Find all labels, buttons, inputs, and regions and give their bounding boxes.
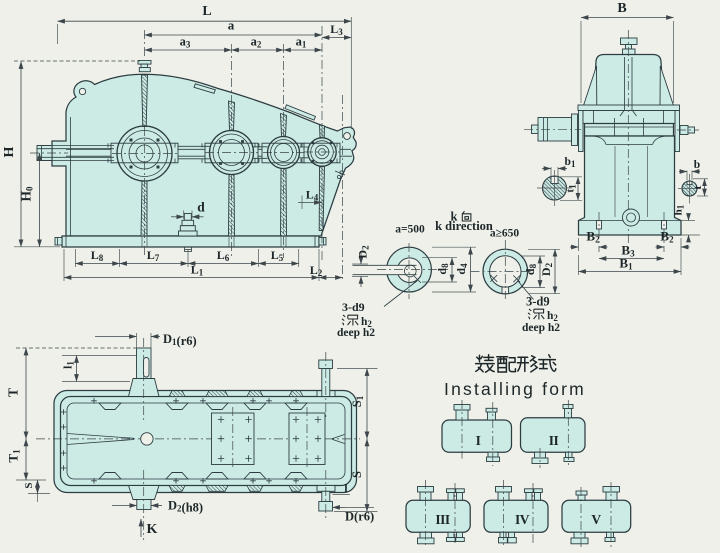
svg-text:T: T (6, 388, 21, 397)
svg-text:k direction: k direction (435, 219, 493, 233)
svg-text:Installing form: Installing form (444, 379, 586, 399)
svg-text:IV: IV (515, 512, 530, 527)
svg-text:S: S (350, 471, 364, 478)
svg-text:d: d (197, 200, 205, 215)
svg-text:b: b (694, 159, 700, 171)
svg-text:a=500: a=500 (395, 224, 425, 236)
svg-text:deep h2: deep h2 (337, 327, 375, 339)
svg-text:a: a (228, 18, 235, 33)
svg-text:V: V (591, 512, 601, 527)
svg-text:III: III (435, 512, 450, 527)
svg-text:K: K (147, 522, 158, 537)
svg-text:II: II (549, 433, 559, 448)
svg-text:l: l (344, 483, 347, 495)
svg-text:D1(r6): D1(r6) (163, 332, 197, 348)
svg-text:3-d9: 3-d9 (526, 295, 550, 309)
svg-text:D(r6): D(r6) (345, 510, 374, 524)
svg-text:deep h2: deep h2 (522, 322, 560, 334)
svg-text:D2(h8): D2(h8) (168, 499, 203, 515)
svg-text:H: H (2, 146, 17, 157)
svg-text:S: S (23, 482, 35, 488)
svg-text:B: B (617, 1, 626, 16)
svg-text:a≥650: a≥650 (490, 228, 520, 240)
svg-text:I: I (476, 433, 481, 448)
svg-text:L: L (202, 4, 211, 19)
svg-text:3-d9: 3-d9 (342, 300, 365, 314)
svg-text:t: t (692, 185, 704, 189)
